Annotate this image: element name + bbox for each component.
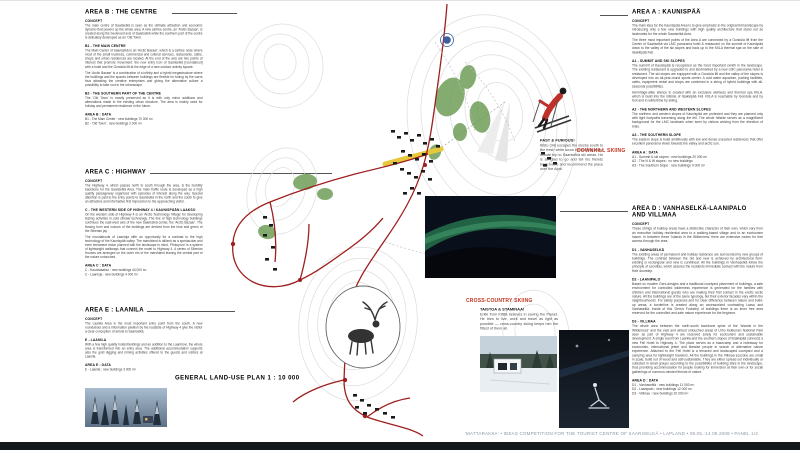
area-a1-text-2: Hermitage-alike silence is created with …: [632, 91, 763, 103]
area-c-concept-label: CONCEPT: [85, 180, 203, 184]
area-a1-label: A1 - SUMMIT AND SKI SLOPES: [632, 60, 763, 64]
area-c-data-label: AREA C : DATA: [85, 264, 203, 268]
area-d-title: AREA D : VANHASELKÄ-LAANIPALO AND VILLMA…: [632, 205, 763, 218]
aurora-photo-art: [425, 196, 556, 278]
winter-forest-photo: [85, 388, 167, 427]
area-b-concept-label: CONCEPT: [85, 20, 203, 24]
downhill-story-title: FAST & FURIOUS!: [540, 138, 603, 143]
competition-panel: AREA B : THE CENTRE CONCEPT The main cen…: [0, 0, 800, 450]
area-d1-text: The existing areas of permanent and holi…: [632, 253, 763, 274]
area-e1-label: E - LAANILA: [85, 339, 203, 343]
right-column-area-d: AREA D : VANHASELKÄ-LAANIPALO AND VILLMA…: [632, 205, 800, 450]
centre-inner-street: [300, 224, 309, 280]
footer-text-wrap: 'MATTARAKKA' • IDEAS COMPETITION FOR THE…: [230, 431, 800, 441]
area-b2-label: B2 - THE SOUTHERN PART OF THE CENTRE: [85, 92, 203, 96]
area-d-concept-text: These strings of buildup areas have a di…: [632, 227, 763, 244]
night-photo-art: [559, 330, 629, 428]
area-b-concept-text: The main centre of Saariselkä is seen as…: [85, 24, 203, 40]
cabin-photo-art: [480, 336, 557, 392]
area-d-data-line: D3 - Villmaa : new buildings 20 000 m²: [632, 392, 763, 396]
area-d-data-line: D1 - Vanhaselkä : new buildings 11 000 m…: [632, 383, 763, 387]
area-d-title-line2: AND VILLMAA: [632, 211, 677, 218]
area-b-data-label: AREA B : DATA: [85, 113, 203, 117]
downhill-skier-cutout: [531, 82, 573, 136]
area-c1-text-2: The roundabouts of Laanioja offer an opp…: [85, 235, 203, 259]
area-d2-label: D2 - LAANIPALO: [632, 278, 763, 282]
mattarakka-oval: [326, 286, 400, 368]
area-d3-text: The whole area between the north-south b…: [632, 325, 763, 375]
area-b1-text-2: The 'Arctic Bazaar' is a combination of …: [85, 71, 203, 87]
area-e-concept-label: CONCEPT: [85, 318, 203, 322]
eco-cabin-photo: [480, 336, 557, 392]
area-d-concept-label: CONCEPT: [632, 223, 763, 227]
night-skiing-photo: [559, 330, 629, 428]
downhill-skiing-label: DOWNHILL SKIING: [577, 148, 625, 154]
area-e-data-label: AREA E : DATA: [85, 364, 203, 368]
area-b1-label: B1 - THE MAIN CENTRE: [85, 45, 203, 49]
area-d1-label: D1 - VANHASELKÄ: [632, 248, 763, 252]
area-d3-label: D3 - VILLMAA: [632, 320, 763, 324]
aurora-night-photo: [425, 196, 556, 278]
area-c-concept-text: The Highway 4, which passes north to sou…: [85, 184, 203, 204]
area-a-title: AREA A : KAUNISPÄÄ: [632, 8, 763, 15]
area-b1-text-1: The Main Center of Saariselkä is an 'Arc…: [85, 49, 203, 69]
footer-credit-line: 'MATTARAKKA' • IDEAS COMPETITION FOR THE…: [230, 431, 758, 436]
area-b-data-line: B1 - The Main Center : new buildings 70 …: [85, 118, 203, 122]
area-c1-label: C - THE WESTERN SIDE OF HIGHWAY 4 / KAUN…: [85, 209, 203, 213]
area-a2-text: The northern and western slopes of Kauni…: [632, 112, 763, 129]
area-e1-text: With a few high quality hotels/buildings…: [85, 343, 203, 359]
area-a-concept-text-2: The three most important points of the A…: [632, 38, 763, 55]
area-c-data-line: C - Laanioja : new buildings 4 000 m²: [85, 273, 203, 277]
area-d-data-line: D2 - Laanipalo : new buildings 12 000 m²: [632, 388, 763, 392]
area-a-concept-label: CONCEPT: [632, 20, 763, 24]
xc-story-text: Erkki from Kittilä believes in saving th…: [480, 312, 558, 331]
area-a3-label: A3 - THE SOUTHERN SLOPE: [632, 133, 763, 137]
area-e-data-line: E - Laanila : new buildings 3 000 m²: [85, 368, 203, 372]
top-edge-rule: [0, 0, 800, 1]
area-e-concept-text: The Laanila Area is the most important e…: [85, 322, 203, 334]
downhill-label-wrap: DOWNHILL SKIING: [577, 148, 674, 159]
xc-story-title: TAISTOA & STAMINAA!: [480, 307, 558, 312]
footer-bar: [0, 442, 800, 450]
road-node-dots: [231, 163, 427, 418]
area-b-data-line: B2 - 'Old Town' : new buildings 2 000 m²: [85, 122, 203, 126]
north-entry-marker: [443, 36, 451, 44]
area-d-data-label: AREA D : DATA: [632, 379, 763, 383]
area-a-concept-text-1: The main idea for the Kaunispää Area is …: [632, 24, 763, 36]
area-a2-label: A2 - THE NORTHERN AND WESTERN SLOPES: [632, 108, 763, 112]
area-d2-text: Based on modern Gers-designs and a tradi…: [632, 283, 763, 316]
laanila-spur-road: [367, 398, 410, 417]
area-a1-text-1: The summit of Kaunispää is recognized as…: [632, 64, 763, 89]
forest-photo-art: [85, 388, 167, 427]
area-c1-text-1: On the western side of Highway 4 is an '…: [85, 213, 203, 233]
area-c-data-line: C - Kaunislaakso : new buildings 44 000 …: [85, 269, 203, 273]
area-b2-text: The 'Old Town' is mostly preserved as it…: [85, 96, 203, 108]
cross-country-skiing-label: CROSS-COUNTRY SKIING: [466, 298, 533, 304]
south-access-road: [293, 380, 344, 402]
